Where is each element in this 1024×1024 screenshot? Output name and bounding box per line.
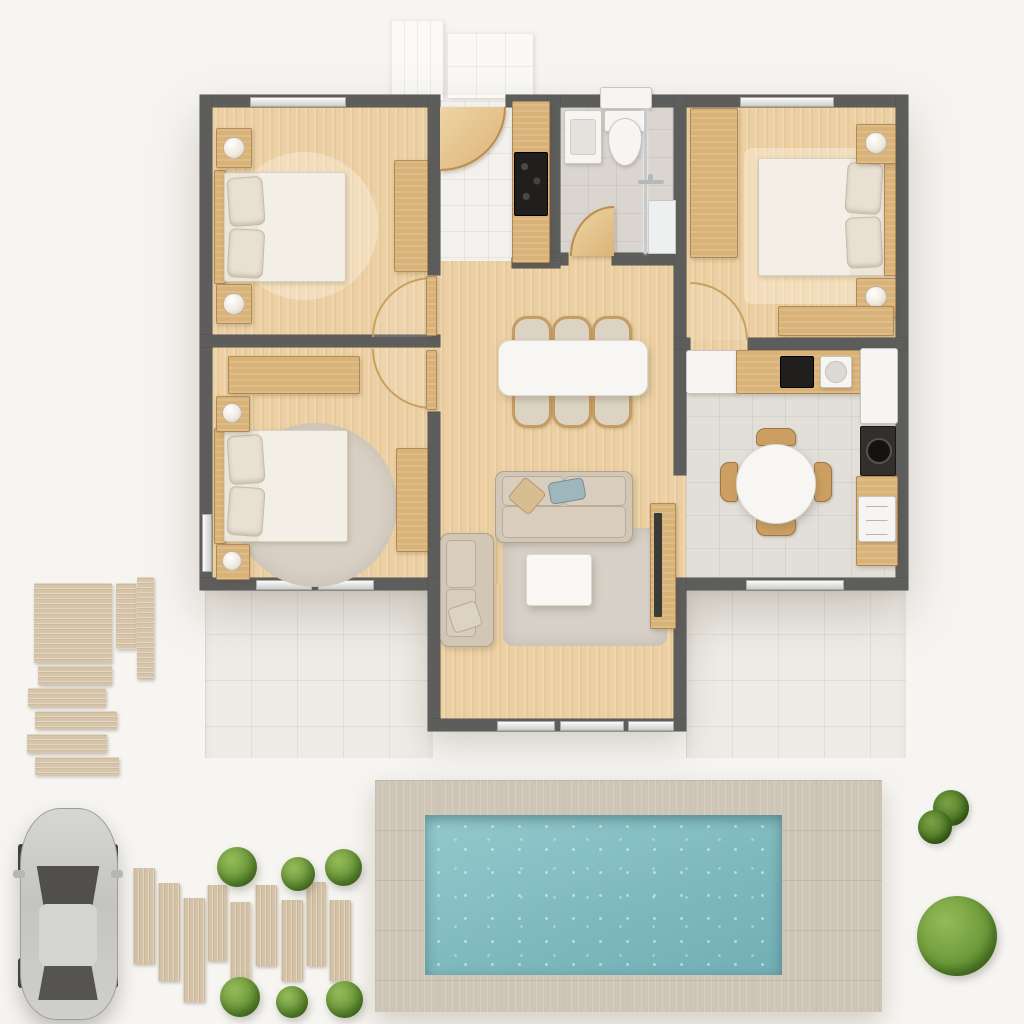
entry-slab-left: [391, 20, 443, 100]
car-mirror-right: [111, 870, 123, 878]
dining-table: [498, 340, 648, 396]
bedroom3-headboard: [884, 158, 896, 276]
window-bedroom1-top: [250, 97, 346, 107]
bedroom1-lamp-top: [223, 137, 245, 159]
bedroom2-lamp-bottom: [222, 551, 242, 571]
bush-path-bottom-1: [220, 977, 260, 1017]
bedroom3-dresser: [778, 306, 894, 336]
bedroom2-wardrobe: [228, 356, 360, 394]
bay-sliding-window-a: [497, 721, 555, 731]
kitchen-sink-basin: [825, 361, 847, 383]
deck-panel-large: [34, 583, 112, 663]
kitchenette-cooktop: [514, 152, 548, 216]
bay-sliding-window-c: [628, 721, 674, 731]
coffee-table: [526, 554, 592, 606]
wall-bay-left: [428, 578, 440, 731]
bush-path-top-3: [325, 849, 362, 886]
deck-step-5: [35, 757, 119, 775]
window-bedroom3-top: [740, 97, 834, 107]
bush-path-bottom-3: [326, 981, 363, 1018]
path-plank-3: [183, 898, 205, 1002]
bedroom2-pillow-top: [226, 434, 265, 485]
deck-step-1: [38, 666, 112, 685]
path-plank-1: [133, 868, 155, 964]
bedroom2-dresser: [396, 448, 428, 552]
floor-plan-scene: [0, 0, 1024, 1024]
deck-step-3: [35, 711, 117, 729]
deck-step-4: [27, 734, 107, 753]
car-roof: [39, 904, 97, 966]
bush-path-bottom-2: [276, 986, 308, 1018]
bush-path-top-2: [281, 857, 315, 891]
kitchen-appliance-box: [858, 496, 896, 542]
dining-chair-bottom-2: [552, 392, 592, 428]
wall-top-right-segment: [506, 95, 908, 107]
dining-chair-bottom-3: [592, 392, 632, 428]
wall-bath-bottom-right: [612, 253, 674, 265]
path-plank-6: [255, 885, 277, 966]
bedroom3-wardrobe: [690, 108, 738, 258]
kitchen-fridge-cabinet: [686, 350, 738, 394]
bedroom1-lamp-bottom: [223, 293, 245, 315]
bedroom1-door-leaf: [426, 276, 437, 336]
pool-water: [425, 815, 782, 975]
bedroom3-pillow-top: [844, 162, 883, 215]
deck-plank-tall: [137, 577, 154, 679]
bedroom3-lamp-top: [865, 132, 887, 154]
kitchen-cooktop: [780, 356, 814, 388]
car-windshield: [34, 866, 102, 906]
patio-right-tiles: [686, 588, 906, 758]
loveseat-cushion-top: [446, 540, 476, 588]
sofa-main-seat: [502, 506, 626, 538]
bay-sliding-window-b: [560, 721, 624, 731]
bathroom-sink-basin: [570, 119, 596, 155]
patio-left-tiles: [205, 588, 433, 758]
bedroom1-wardrobe: [394, 160, 428, 272]
path-plank-8: [306, 882, 326, 966]
kitchen-round-table: [736, 444, 816, 524]
shower-handle-knob: [648, 174, 653, 184]
car: [20, 808, 116, 1018]
kitchen-oven-dial: [866, 438, 892, 464]
wall-bed1-right-upper: [428, 95, 440, 275]
kitchen-tall-cabinet: [860, 348, 898, 424]
large-bush-right: [917, 896, 997, 976]
path-plank-5: [230, 902, 251, 983]
dining-chair-bottom-1: [512, 392, 552, 428]
car-rear-window: [37, 966, 99, 1000]
deck-step-2: [28, 688, 106, 707]
wall-kitchen-left: [674, 350, 686, 475]
path-plank-9: [329, 900, 351, 981]
spiky-plant-2: [918, 810, 952, 844]
path-plank-7: [281, 900, 303, 981]
tv-screen: [654, 513, 662, 617]
wall-bed2-right-lower: [428, 412, 440, 578]
entry-slab-right: [447, 33, 533, 98]
bedroom1-pillow-top: [226, 176, 265, 227]
window-left-wall: [202, 514, 212, 572]
bush-path-top-1: [217, 847, 257, 887]
toilet-cistern: [600, 87, 652, 109]
bedroom1-pillow-bottom: [227, 228, 266, 279]
bedroom2-lamp-top: [222, 403, 242, 423]
path-plank-2: [158, 883, 180, 981]
kitchen-chair-right: [814, 462, 832, 502]
shower-tray: [648, 200, 676, 254]
wall-bed3-bottom-left-stub: [674, 338, 690, 350]
path-plank-4: [207, 885, 227, 961]
bedroom3-pillow-bottom: [845, 216, 884, 269]
bedroom2-pillow-bottom: [226, 486, 265, 537]
bedroom2-door-leaf: [426, 350, 437, 410]
car-mirror-left: [13, 870, 25, 878]
bedroom3-lamp-bottom: [865, 286, 887, 308]
window-kitchen-bottom: [746, 580, 844, 590]
deck-plank-mid: [116, 583, 136, 649]
